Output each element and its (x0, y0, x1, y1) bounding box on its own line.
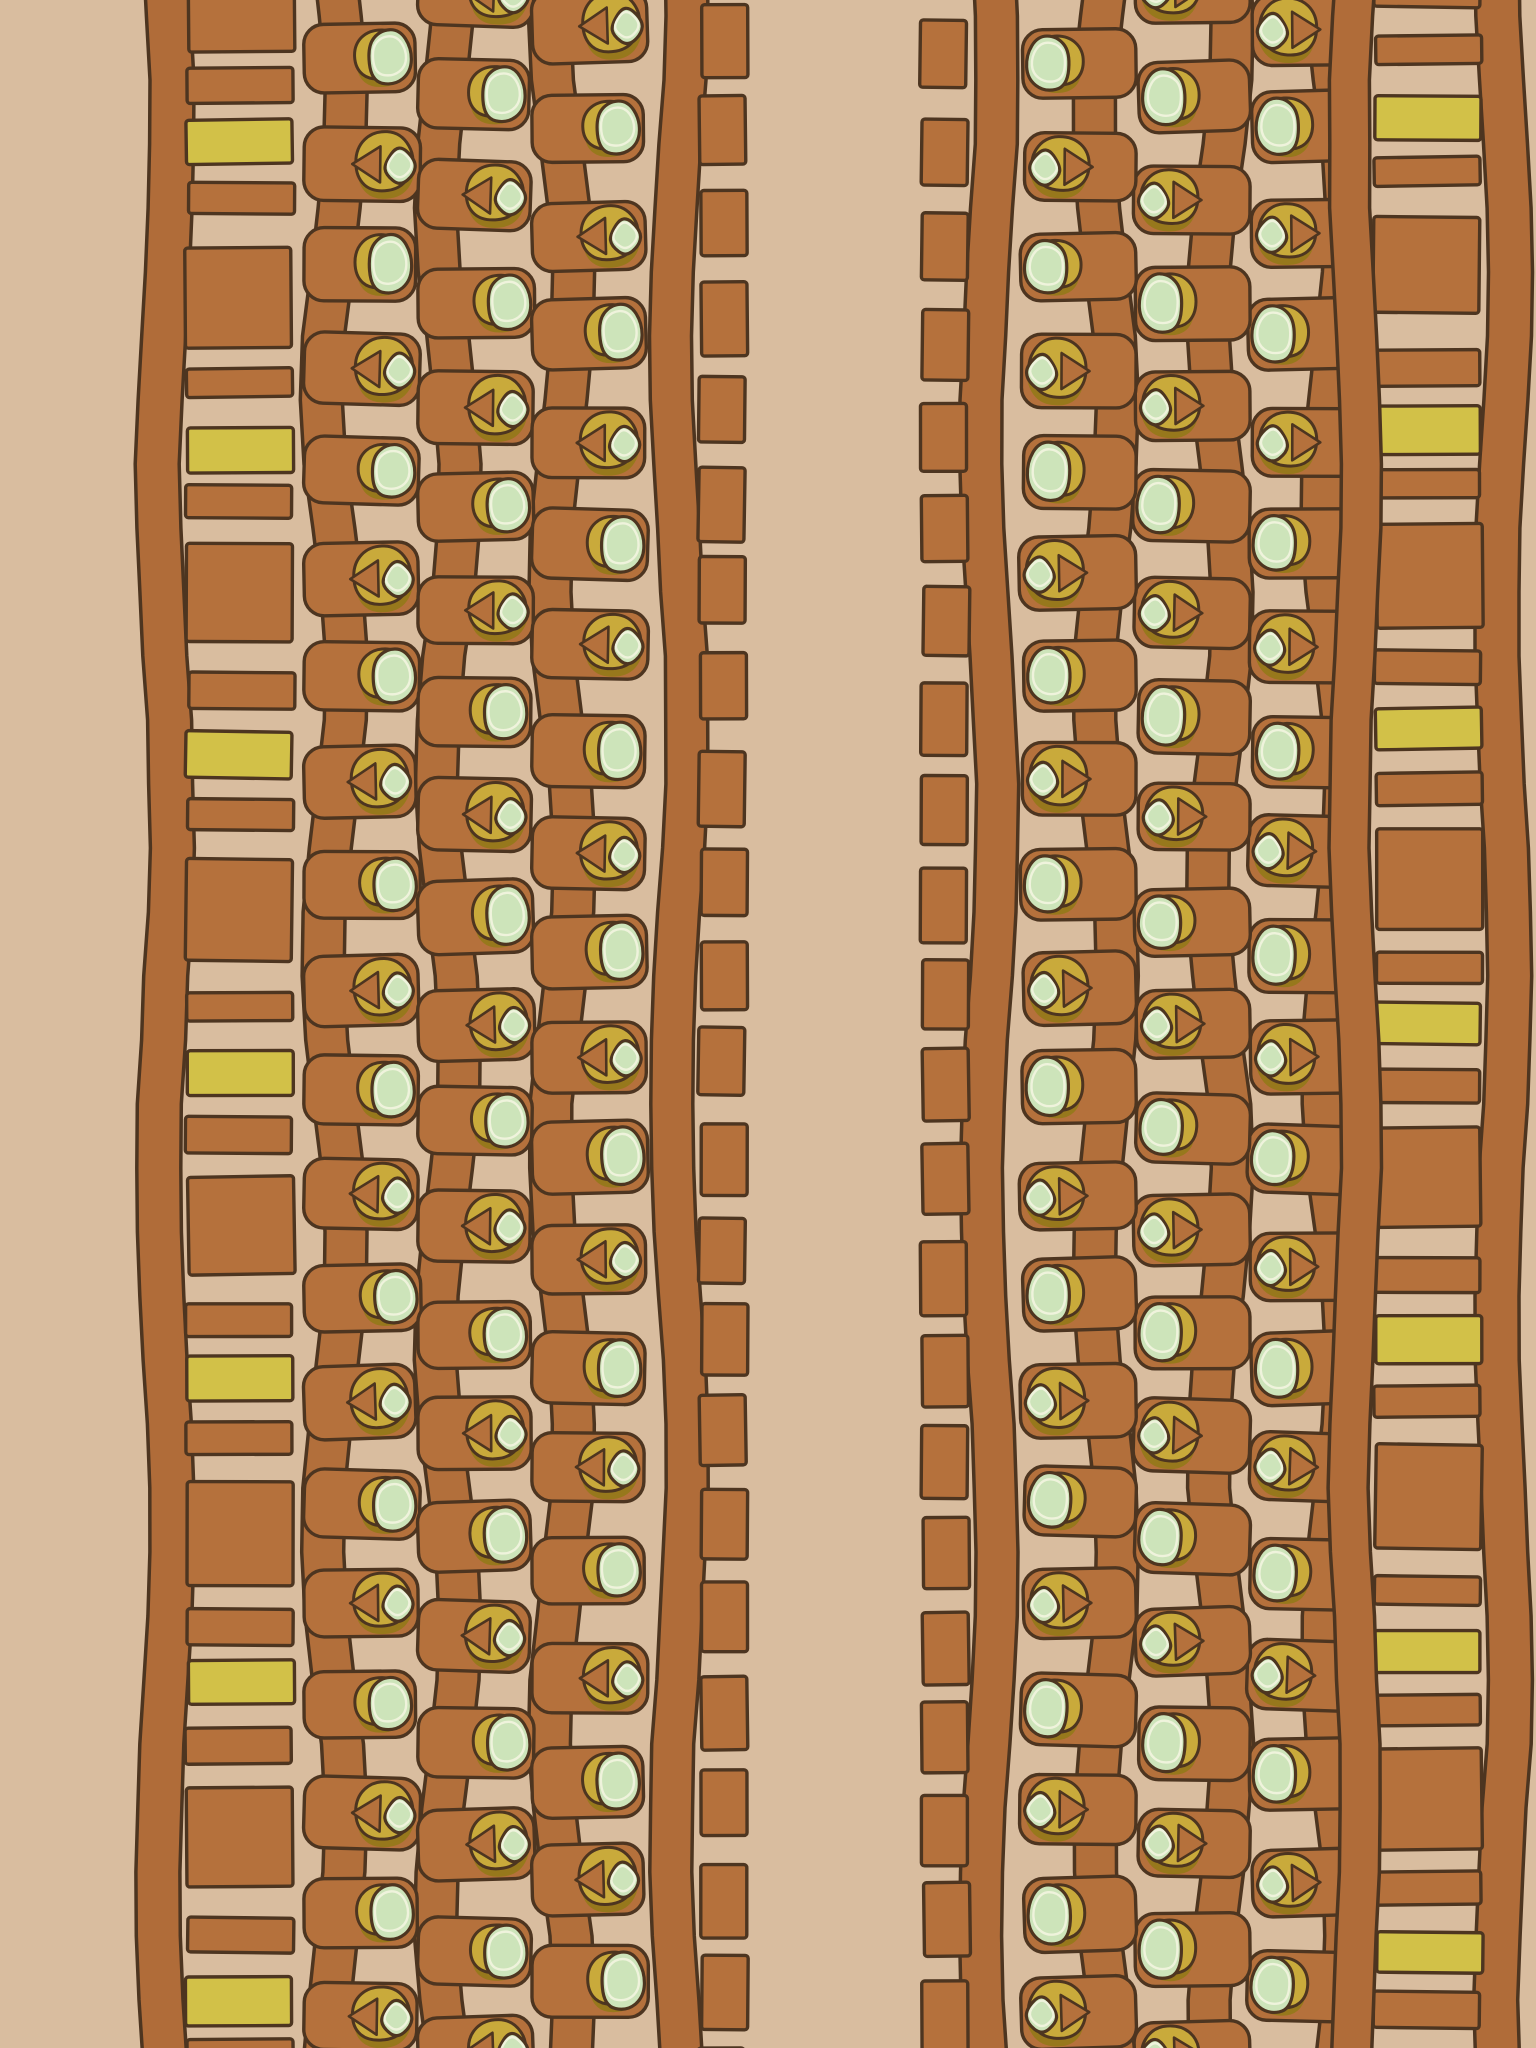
wallpaper-pattern (0, 0, 1536, 2048)
pattern-canvas (0, 0, 1536, 2048)
